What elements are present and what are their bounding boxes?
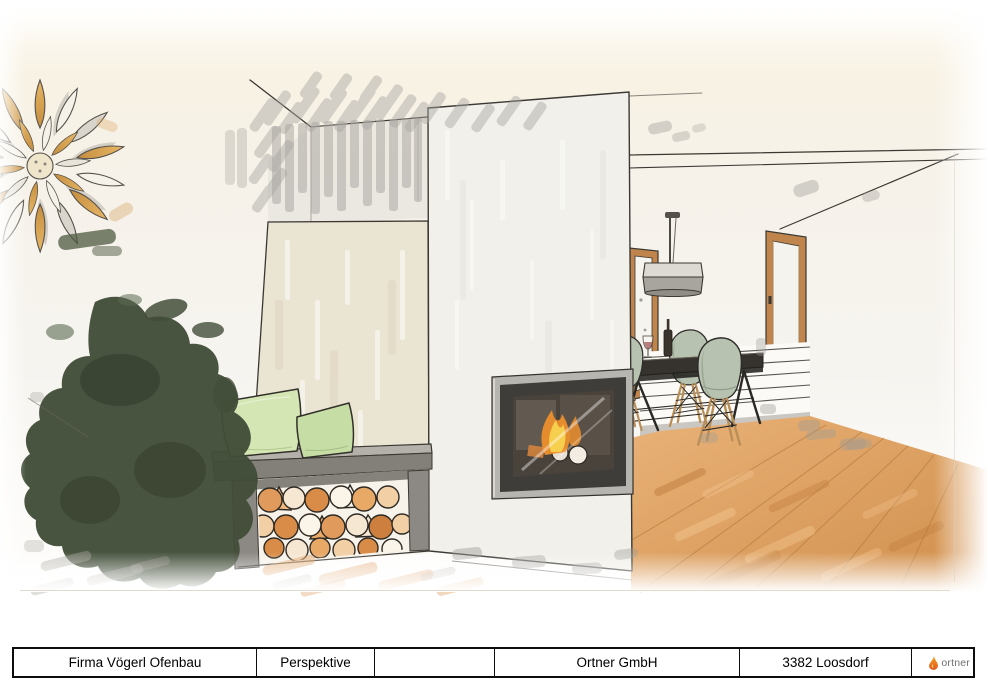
title-block: Firma Vögerl Ofenbau Perspektive Ortner … (12, 647, 975, 678)
window-handle (769, 296, 772, 304)
flame-icon (928, 655, 940, 671)
perspective-rendering (0, 0, 988, 644)
upper-wall-shading (268, 118, 427, 224)
drawing-sheet: Firma Vögerl Ofenbau Perspektive Ortner … (0, 0, 988, 685)
ortner-logo: ortner (928, 655, 970, 671)
title-block-location: 3382 Loosdorf (740, 649, 912, 676)
fireplace-insert (492, 369, 633, 499)
title-block-empty-field (375, 649, 495, 676)
chimney-panel (428, 92, 632, 580)
title-block-company: Ortner GmbH (495, 649, 740, 676)
title-block-client: Firma Vögerl Ofenbau (14, 649, 257, 676)
title-block-logo-cell: ortner (912, 649, 973, 676)
logo-text: ortner (941, 657, 970, 669)
title-block-view: Perspektive (257, 649, 375, 676)
